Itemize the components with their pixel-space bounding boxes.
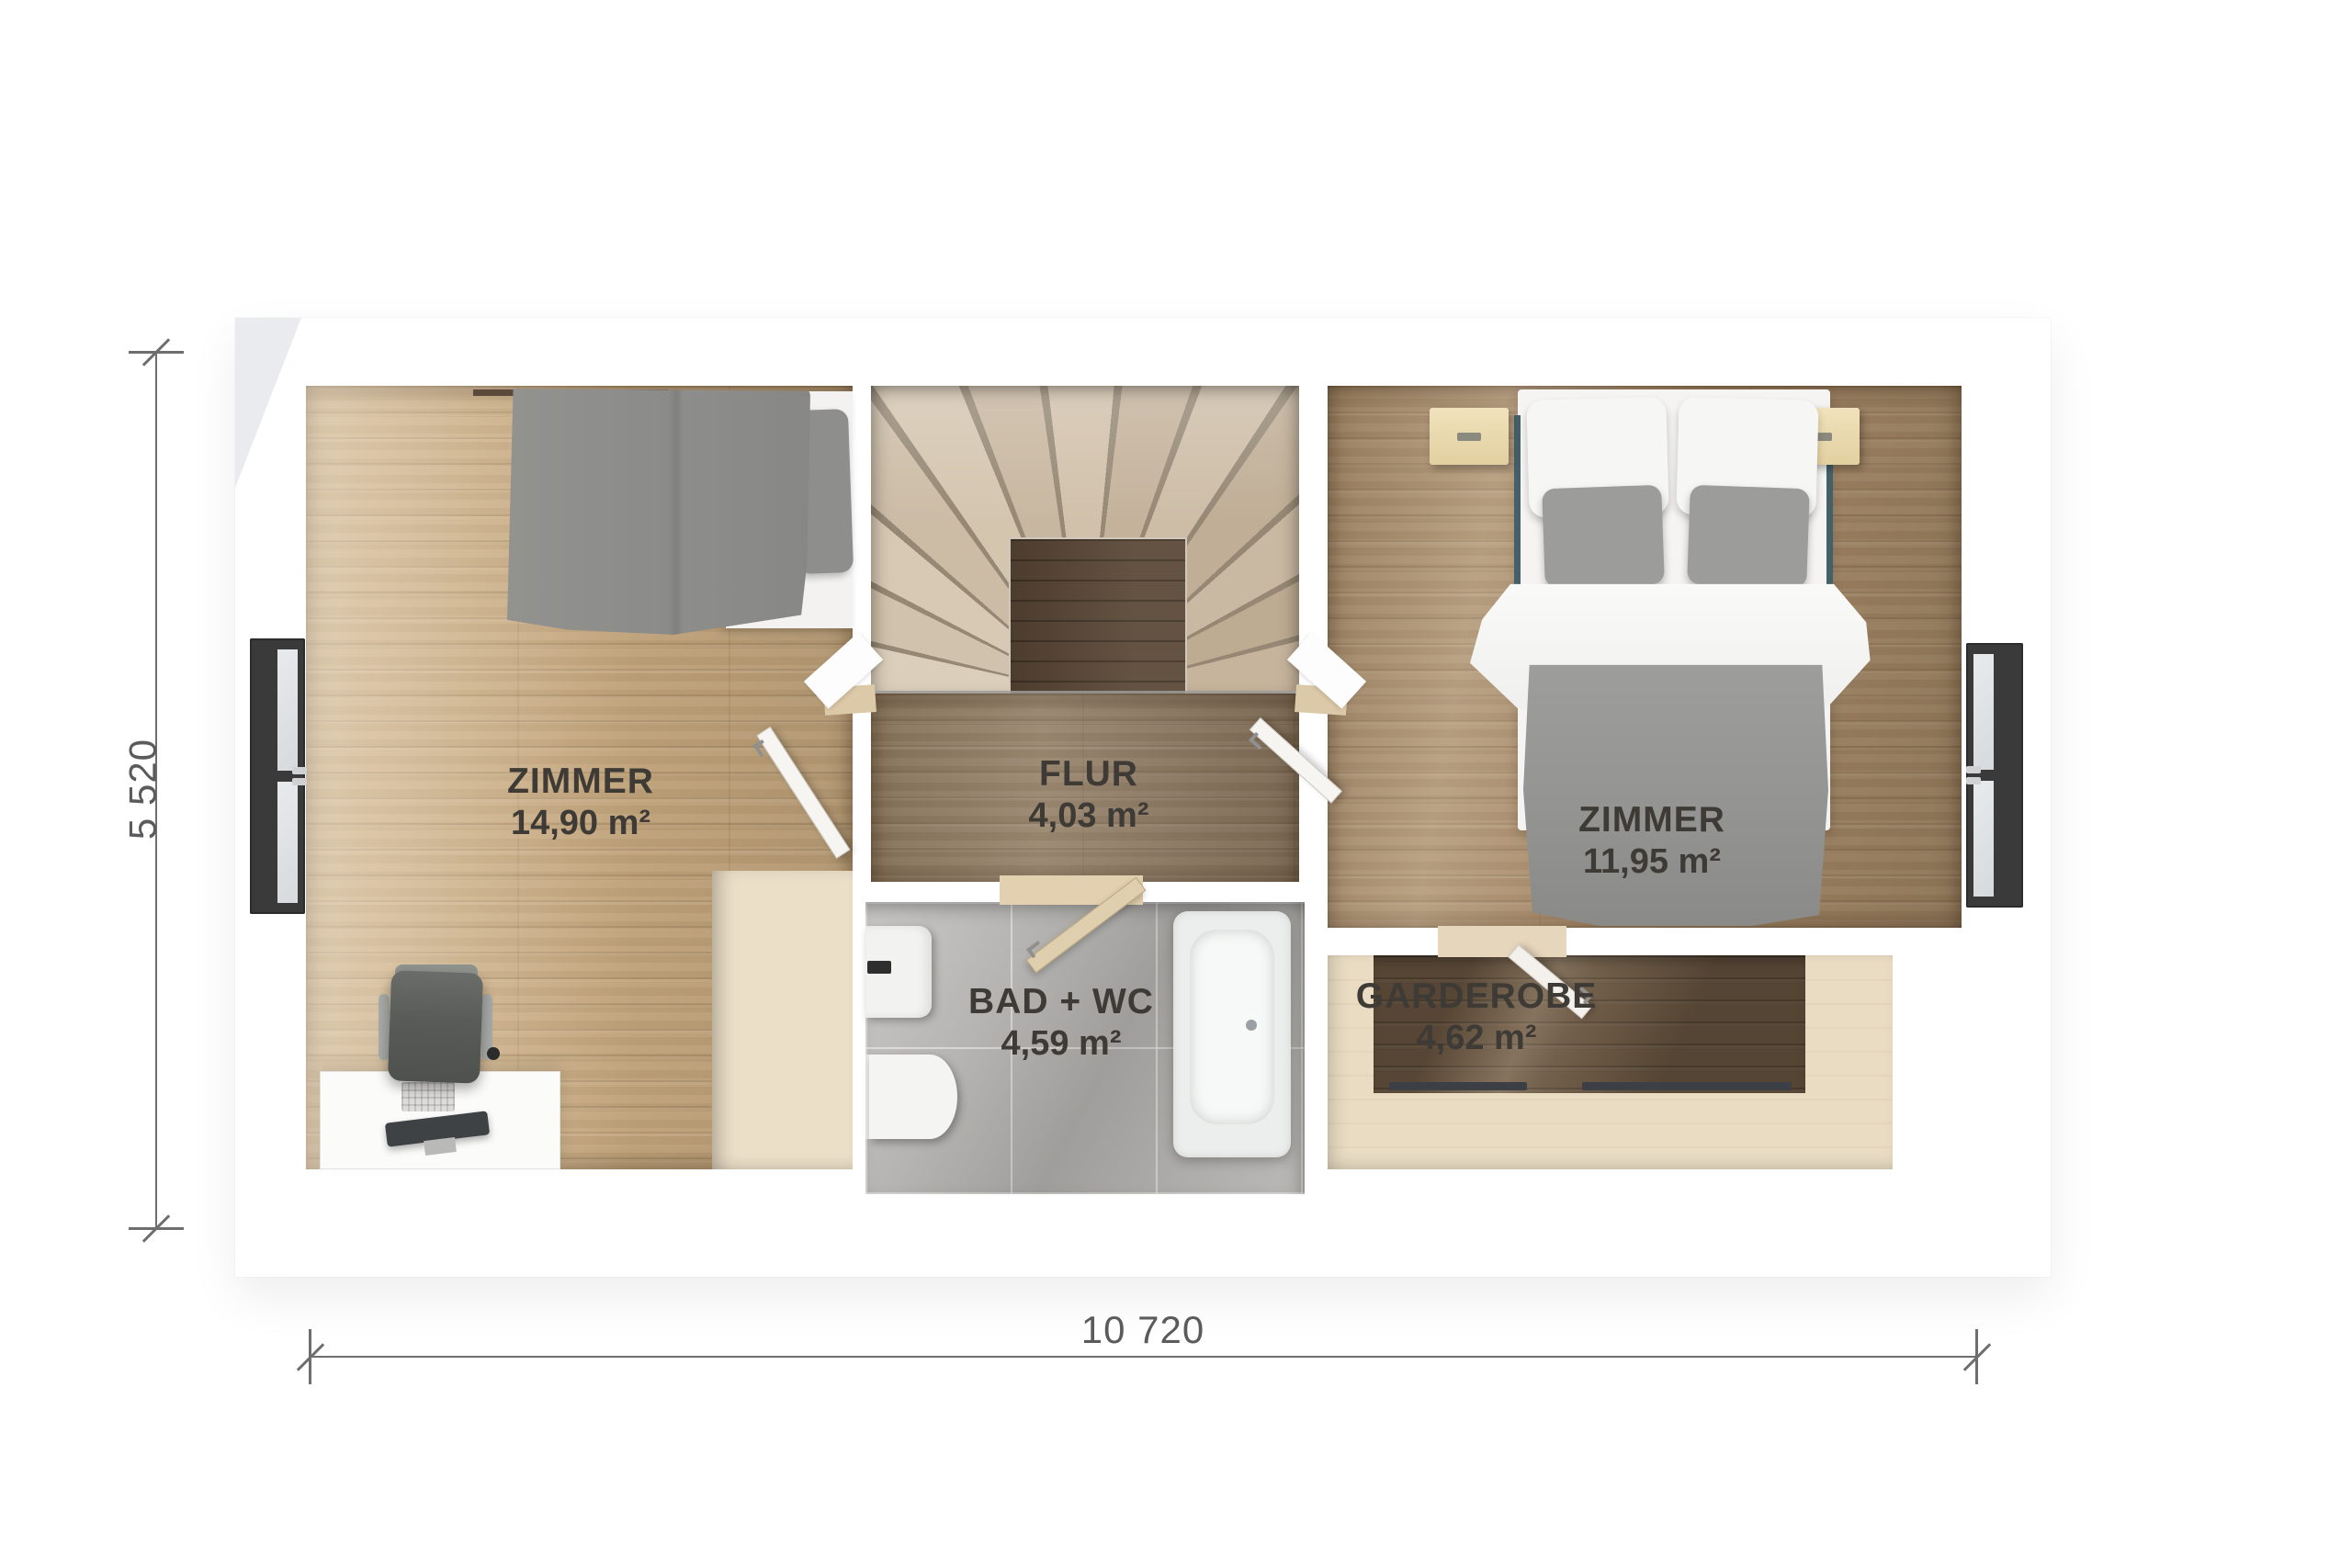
room-name: GARDEROBE: [1329, 976, 1623, 1018]
pillow: [1687, 485, 1810, 588]
nightstand-handle: [1457, 433, 1481, 441]
bathtub-drain: [1246, 1020, 1257, 1031]
window-handle-icon: [292, 767, 307, 774]
office-chair: [388, 970, 483, 1083]
dimension-label-height: 5 520: [121, 700, 165, 879]
pillow: [1542, 485, 1665, 588]
window-handle-icon: [1966, 777, 1981, 784]
window-pane: [277, 782, 298, 903]
room-name: ZIMMER: [434, 761, 728, 803]
dimension-line-horizontal: [310, 1356, 1977, 1358]
room-area: 4,59 m²: [914, 1023, 1208, 1065]
window-right: [1966, 643, 2023, 908]
door-sill: [1438, 926, 1566, 957]
room-area: 14,90 m²: [434, 803, 728, 844]
window-left: [250, 638, 305, 914]
room-label-bad-wc: BAD + WC 4,59 m²: [914, 981, 1208, 1065]
room-label-flur: FLUR 4,03 m²: [942, 753, 1236, 837]
wardrobe-rail: [1389, 1082, 1527, 1090]
toilet: [869, 1055, 957, 1139]
floor-plan: ZIMMER 14,90 m² FLUR 4,03 m² ZIMMER 11,9…: [0, 0, 2352, 1568]
room-name: ZIMMER: [1505, 799, 1799, 841]
room-label-zimmer-right: ZIMMER 11,95 m²: [1505, 799, 1799, 883]
room-name: BAD + WC: [914, 981, 1208, 1023]
room-area: 4,03 m²: [942, 795, 1236, 837]
window-pane: [1973, 654, 1994, 770]
room-label-garderobe: GARDEROBE 4,62 m²: [1329, 976, 1623, 1059]
double-bed-duvet: [1523, 654, 1828, 926]
room-name: FLUR: [942, 753, 1236, 795]
faucet: [867, 961, 891, 974]
nightstand-left: [1430, 408, 1509, 465]
single-bed-duvet: [507, 389, 810, 635]
built-in-storage-left-room: [712, 871, 853, 1169]
keyboard: [401, 1082, 455, 1111]
room-label-zimmer-left: ZIMMER 14,90 m²: [434, 761, 728, 844]
window-pane: [1973, 781, 1994, 897]
window-handle-icon: [292, 778, 307, 785]
double-bed-frame: [1514, 415, 1521, 588]
wardrobe-rail: [1582, 1082, 1792, 1090]
stair-landing: [1009, 537, 1187, 694]
room-area: 4,62 m²: [1329, 1018, 1623, 1059]
office-chair-knob: [487, 1047, 500, 1060]
room-area: 11,95 m²: [1505, 841, 1799, 883]
window-pane: [277, 649, 298, 771]
dimension-label-width: 10 720: [1051, 1308, 1235, 1352]
window-handle-icon: [1966, 766, 1981, 773]
